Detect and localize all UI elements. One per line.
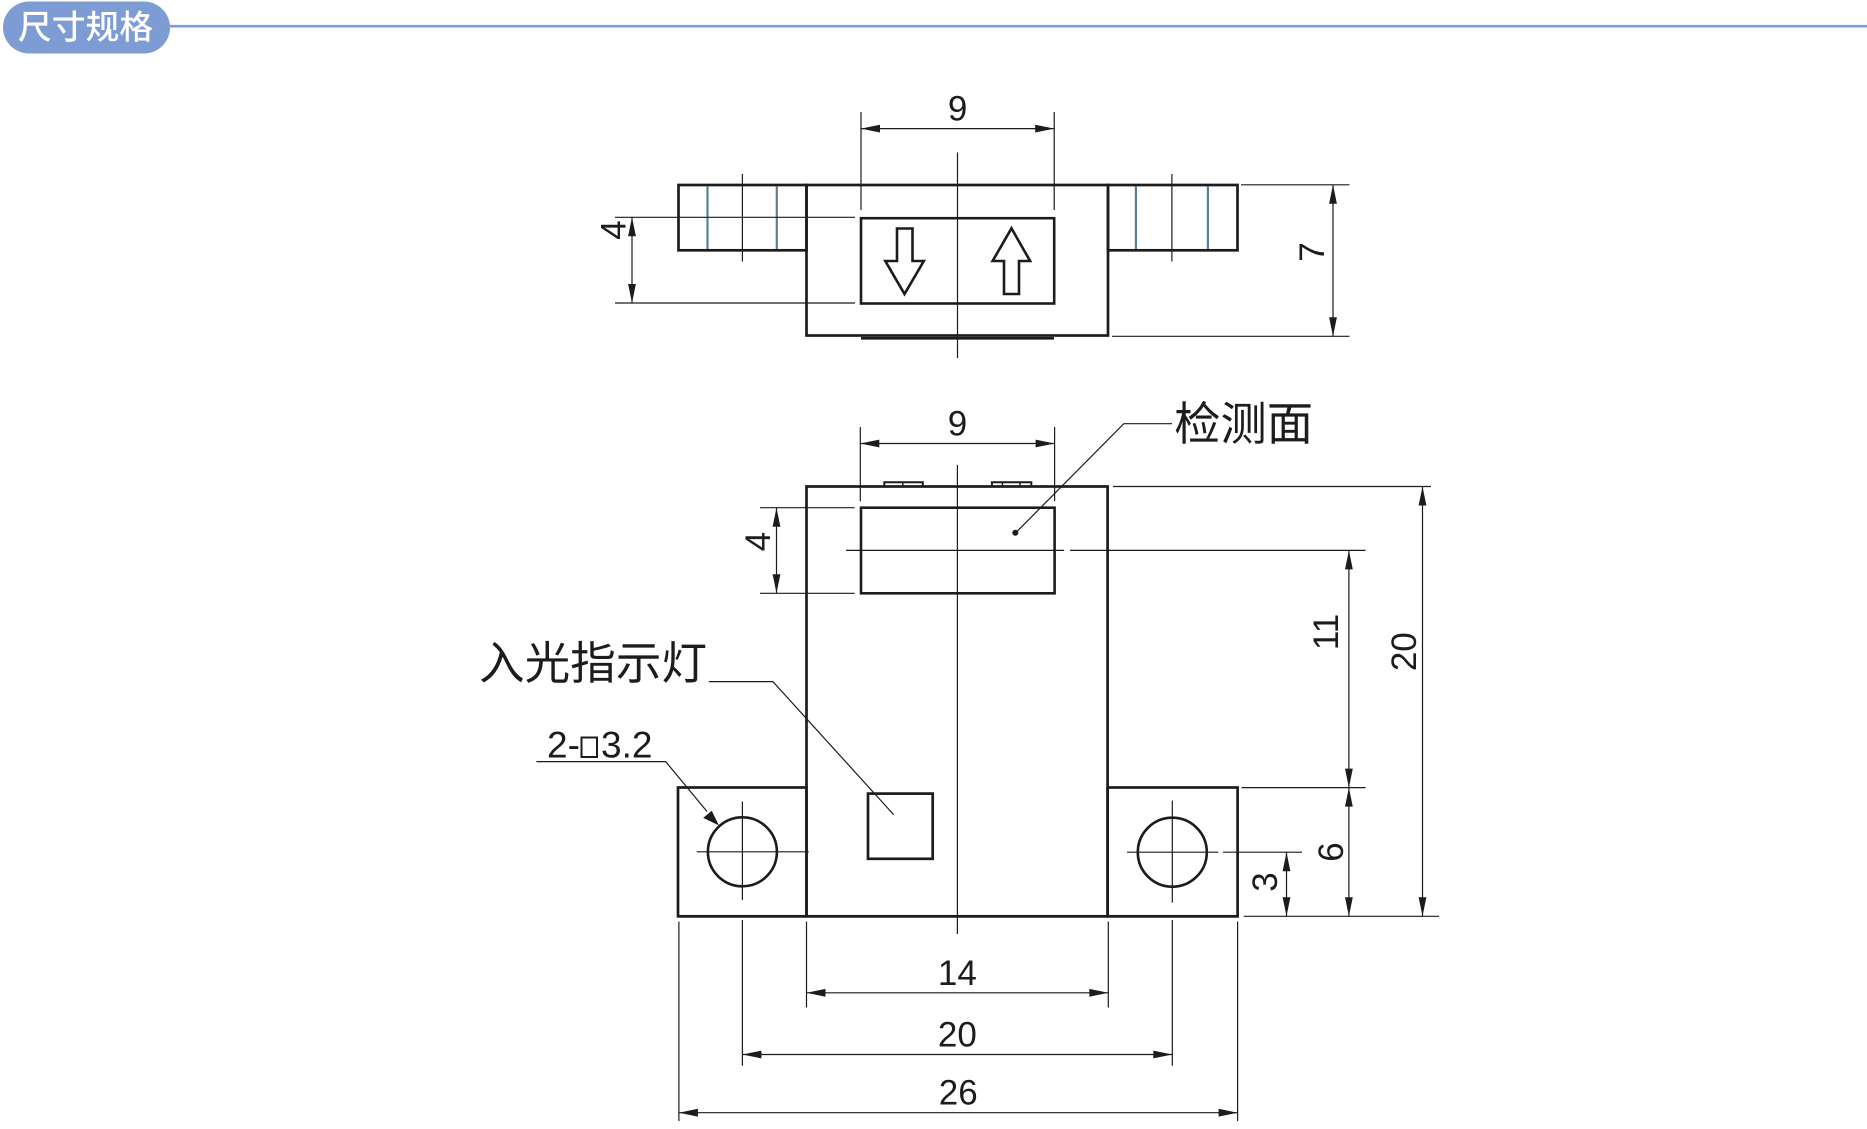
svg-text:7: 7 (1293, 242, 1332, 261)
svg-text:20: 20 (938, 1016, 977, 1055)
svg-text:4: 4 (739, 532, 778, 551)
svg-text:4: 4 (594, 220, 633, 239)
svg-text:9: 9 (948, 90, 967, 129)
svg-text:26: 26 (939, 1074, 978, 1113)
svg-text:2-: 2- (547, 725, 580, 766)
svg-text:14: 14 (938, 954, 977, 993)
svg-text:3.2: 3.2 (601, 725, 652, 766)
svg-text:20: 20 (1385, 632, 1424, 671)
svg-text:11: 11 (1307, 614, 1346, 650)
svg-text:6: 6 (1312, 842, 1351, 861)
svg-text:9: 9 (948, 405, 967, 444)
svg-text:3: 3 (1246, 872, 1285, 891)
